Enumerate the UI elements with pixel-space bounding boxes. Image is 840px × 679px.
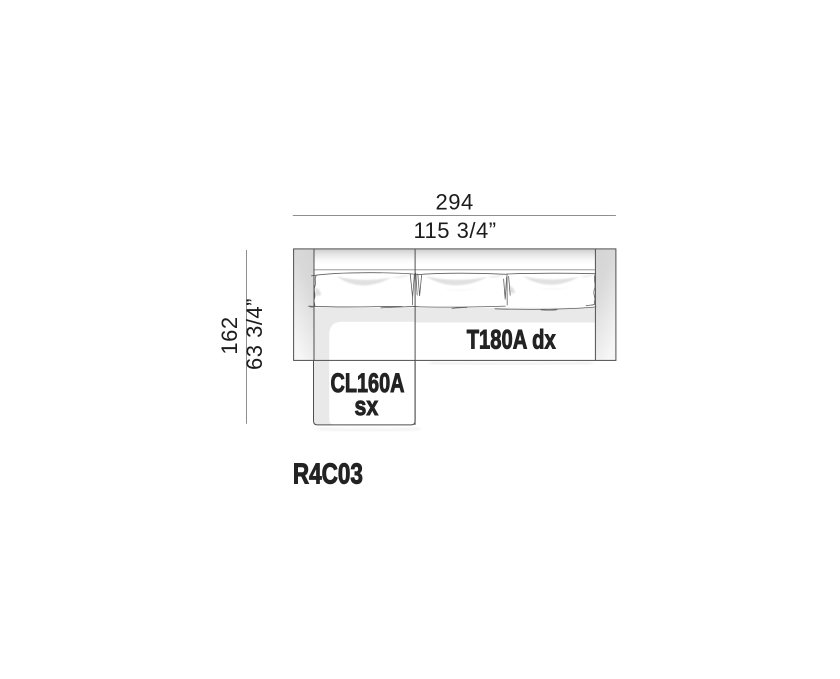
svg-text:sx: sx bbox=[355, 392, 379, 422]
svg-text:294: 294 bbox=[435, 190, 473, 215]
svg-text:63 3/4”: 63 3/4” bbox=[242, 298, 267, 370]
svg-text:162: 162 bbox=[217, 316, 242, 354]
svg-text:T180A dx: T180A dx bbox=[467, 325, 557, 356]
svg-text:115 3/4”: 115 3/4” bbox=[413, 218, 496, 243]
svg-text:R4C03: R4C03 bbox=[293, 459, 363, 490]
